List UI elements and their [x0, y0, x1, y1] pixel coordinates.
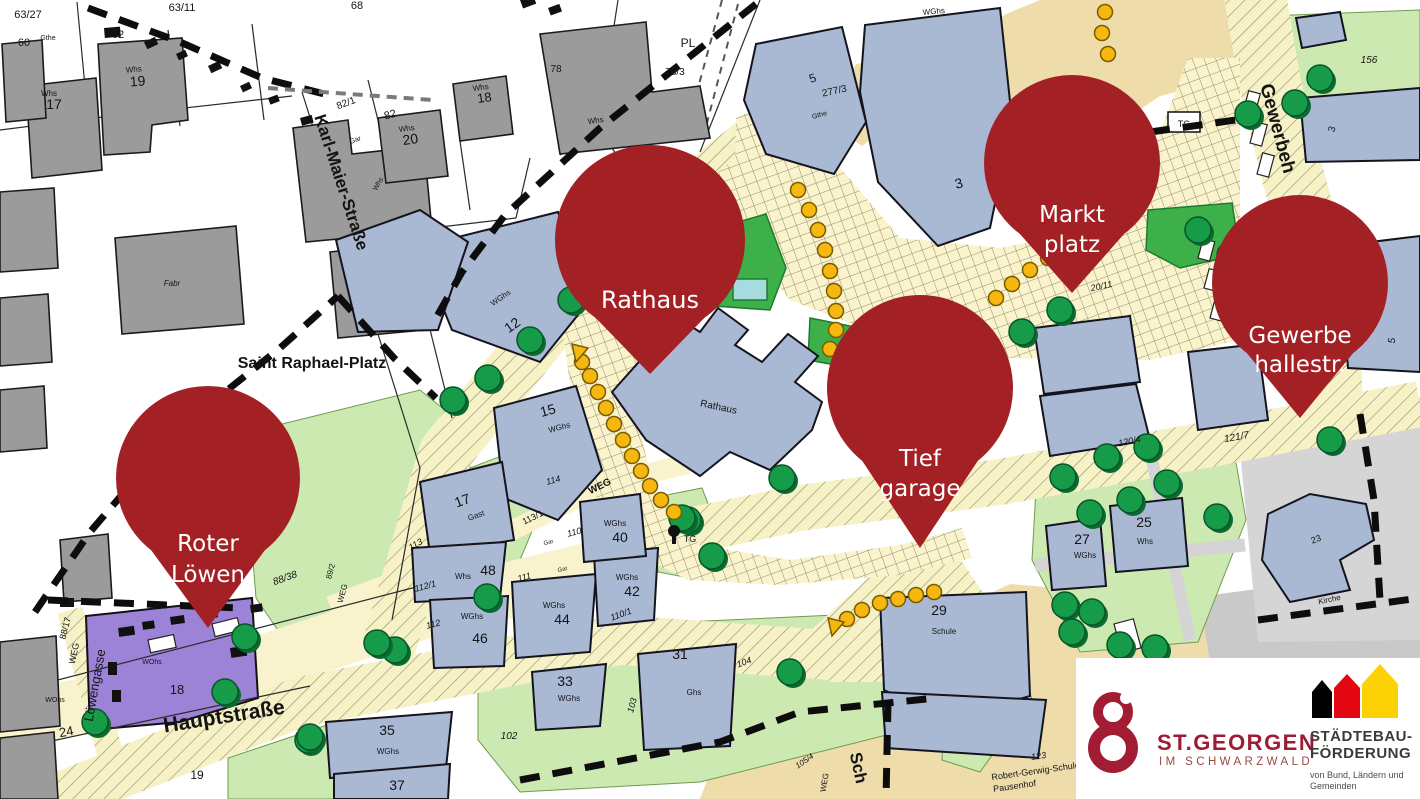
st-georgen-logo-icon	[1076, 658, 1156, 788]
map-label: TG	[684, 534, 697, 544]
path-dot	[599, 401, 614, 416]
map-label: 48	[480, 562, 496, 578]
map-label: Ghs	[687, 688, 702, 697]
map-label: WGhs	[543, 601, 565, 610]
building-gray	[2, 40, 46, 122]
map-label: 62	[112, 29, 124, 41]
path-dot	[1023, 263, 1038, 278]
map-label: 20	[401, 130, 419, 148]
map-label: WGhs	[1074, 551, 1096, 560]
map-label: 18	[476, 89, 492, 106]
building-gray	[60, 534, 112, 602]
map-label: WOhs	[142, 659, 162, 666]
pin-label: Tief	[898, 446, 942, 472]
path-dot	[873, 596, 888, 611]
path-dot	[811, 223, 826, 238]
tree-icon	[769, 465, 798, 494]
map-label: 46	[472, 630, 488, 646]
path-dot	[827, 284, 842, 299]
map-label: 31	[672, 646, 688, 662]
staedtebau-houses-icon	[1304, 662, 1404, 722]
map-label: 27	[1074, 531, 1090, 547]
logo-panel: ST.GEORGEN IM SCHWARZWALD STÄDTEBAU- FÖR…	[1076, 658, 1420, 799]
path-dot	[989, 291, 1004, 306]
map-label: 25	[1136, 514, 1152, 530]
path-dot	[1101, 47, 1116, 62]
map-label: 156	[1361, 55, 1378, 66]
map-label: 29	[931, 602, 947, 618]
map-label: Schule	[932, 627, 957, 636]
map-stage: 63/2760Gthe6263/1168Whs19Whs17Whs20Whs18…	[0, 0, 1420, 799]
building-blue	[580, 494, 646, 562]
path-dot	[818, 243, 833, 258]
map-label: WOhs	[45, 697, 65, 704]
building-blue	[860, 8, 1012, 246]
st-georgen-title: ST.GEORGEN	[1157, 730, 1316, 756]
building-gray	[98, 38, 188, 155]
pin-label: garage	[880, 476, 961, 502]
path-dot	[667, 505, 682, 520]
map-label: Gar	[349, 135, 363, 146]
building-blue	[1300, 88, 1420, 162]
map-label: Gar	[543, 539, 554, 547]
map-label: WGhs	[377, 747, 399, 756]
map-label: 44	[554, 611, 570, 627]
staedtebau-tagline1: von Bund, Ländern und	[1310, 770, 1404, 780]
path-dot	[625, 449, 640, 464]
map-label: 68	[351, 0, 363, 12]
path-dot	[829, 304, 844, 319]
building-blue	[1034, 316, 1140, 394]
map-label: 63/27	[14, 9, 42, 21]
pin-label: Markt	[1039, 202, 1105, 228]
map-label: 63/11	[169, 2, 196, 14]
path-dot	[802, 203, 817, 218]
pin-label: platz	[1044, 232, 1100, 258]
pin-label: Löwen	[171, 562, 245, 588]
map-label: Whs	[455, 572, 471, 581]
map-label: 82/1	[335, 95, 357, 112]
pin-label: Roter	[177, 531, 239, 557]
building-gray	[0, 386, 47, 452]
pin-label: hallestr.	[1254, 352, 1345, 378]
map-label: 24	[58, 723, 75, 740]
map-label: Saint Raphael-Platz	[238, 355, 386, 372]
map-label: TG	[1178, 119, 1191, 129]
map-label: WGhs	[604, 519, 626, 528]
path-dot	[829, 323, 844, 338]
map-label: Gthe	[40, 35, 55, 42]
map-label: 35	[379, 722, 395, 738]
map-label: Fabr	[164, 279, 181, 288]
path-dot	[1005, 277, 1020, 292]
map-label: 110	[566, 525, 582, 538]
map-label: 60	[18, 37, 30, 49]
map-label: Whs	[1137, 537, 1153, 546]
map-label: 42	[624, 583, 640, 599]
building-gray	[0, 732, 58, 799]
path-dot	[643, 479, 658, 494]
path-dot	[634, 464, 649, 479]
building-gray	[0, 636, 60, 732]
st-georgen-subtitle: IM SCHWARZWALD	[1159, 756, 1313, 768]
building-gray	[0, 188, 58, 272]
path-dot	[591, 385, 606, 400]
map-label: 33	[557, 673, 573, 689]
path-dot	[1095, 26, 1110, 41]
path-dot	[909, 588, 924, 603]
path-dot	[791, 183, 806, 198]
map-label: 18	[170, 682, 184, 697]
path-dot	[607, 417, 622, 432]
staedtebau-line1: STÄDTEBAU-	[1310, 728, 1413, 745]
map-label: 78/3	[665, 67, 685, 78]
staedtebau-tagline2: Gemeinden	[1310, 781, 1357, 791]
path-dot	[1098, 5, 1113, 20]
map-label: WGhs	[558, 694, 580, 703]
pin-label: Gewerbe	[1248, 323, 1351, 349]
pin-label: Rathaus	[601, 286, 699, 314]
map-label: 123	[1030, 750, 1046, 762]
map-label: 17	[46, 96, 62, 112]
path-dot	[891, 592, 906, 607]
map-label: 19	[190, 768, 204, 782]
path-dot	[823, 264, 838, 279]
path-dot	[927, 585, 942, 600]
map-label: WGhs	[616, 573, 638, 582]
map-label: WGhs	[461, 612, 483, 621]
map-label: 37	[389, 777, 405, 793]
staedtebau-line2: FÖRDERUNG	[1310, 745, 1411, 762]
map-label: 78	[550, 64, 562, 75]
path-dot	[583, 369, 598, 384]
map-label: PL	[681, 36, 696, 50]
path-dot	[654, 493, 669, 508]
map-label: 19	[129, 72, 146, 89]
building-gray	[0, 294, 52, 366]
map-label: 102	[501, 731, 518, 742]
path-dot	[616, 433, 631, 448]
map-label: 40	[612, 529, 628, 545]
path-dot	[855, 603, 870, 618]
